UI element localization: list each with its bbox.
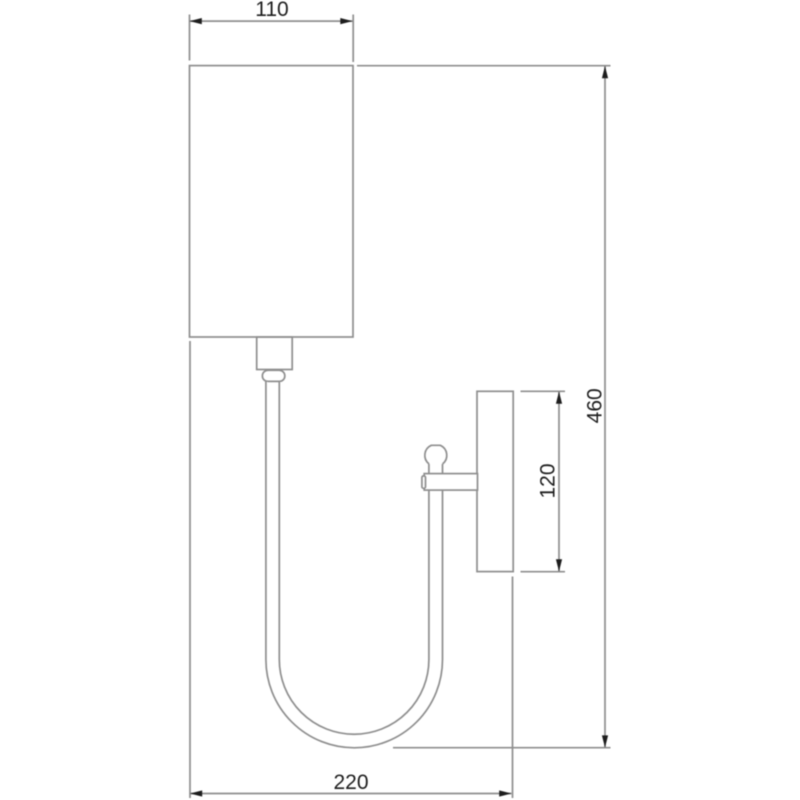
svg-text:220: 220 bbox=[333, 771, 368, 794]
svg-text:110: 110 bbox=[255, 0, 288, 21]
svg-text:120: 120 bbox=[537, 463, 560, 498]
svg-text:460: 460 bbox=[584, 388, 607, 423]
